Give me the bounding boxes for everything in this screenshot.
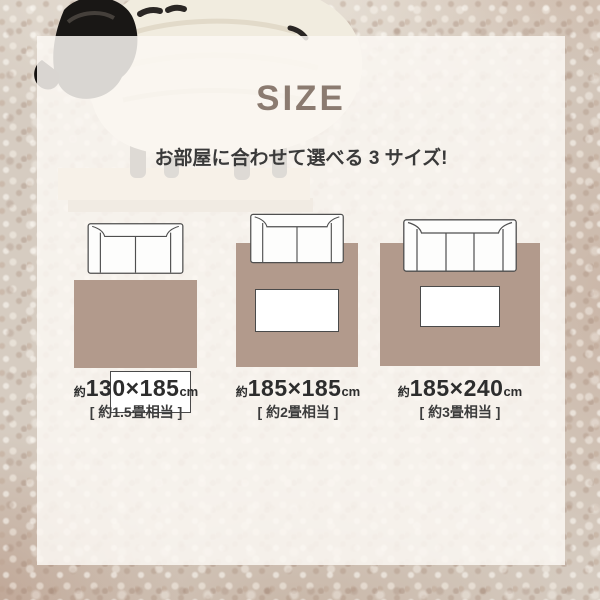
- size-label: 約185×240cm [ 約3畳相当 ]: [380, 377, 540, 419]
- low-table-icon: [420, 286, 500, 327]
- size-label: 約185×185cm [ 約2畳相当 ]: [222, 377, 374, 419]
- tatami-equivalent: [ 約1.5畳相当 ]: [60, 405, 212, 419]
- rug-rectangle: [74, 280, 197, 368]
- size-option-185x185: 約185×185cm [ 約2畳相当 ]: [222, 213, 374, 423]
- size-dimensions: 約130×185cm: [60, 377, 212, 400]
- size-dimensions: 約185×185cm: [222, 377, 374, 400]
- size-option-185x240: 約185×240cm [ 約3畳相当 ]: [380, 213, 540, 423]
- rug-size-infographic: SIZE お部屋に合わせて選べる 3 サイズ! 約130×185cm [ 約1.…: [0, 0, 600, 600]
- sofa-3-seat-top-view-icon: [403, 219, 517, 272]
- size-dimensions: 約185×240cm: [380, 377, 540, 400]
- tatami-equivalent: [ 約2畳相当 ]: [222, 405, 374, 419]
- size-option-130x185: 約130×185cm [ 約1.5畳相当 ]: [60, 213, 212, 423]
- sofa-2-seat-top-view-icon: [250, 213, 344, 264]
- tatami-equivalent: [ 約3畳相当 ]: [380, 405, 540, 419]
- page-subtitle: お部屋に合わせて選べる 3 サイズ!: [37, 146, 565, 173]
- low-table-icon: [255, 289, 339, 332]
- sofa-2-seat-top-view-icon: [87, 223, 184, 274]
- page-title: SIZE: [37, 78, 565, 120]
- size-label: 約130×185cm [ 約1.5畳相当 ]: [60, 377, 212, 419]
